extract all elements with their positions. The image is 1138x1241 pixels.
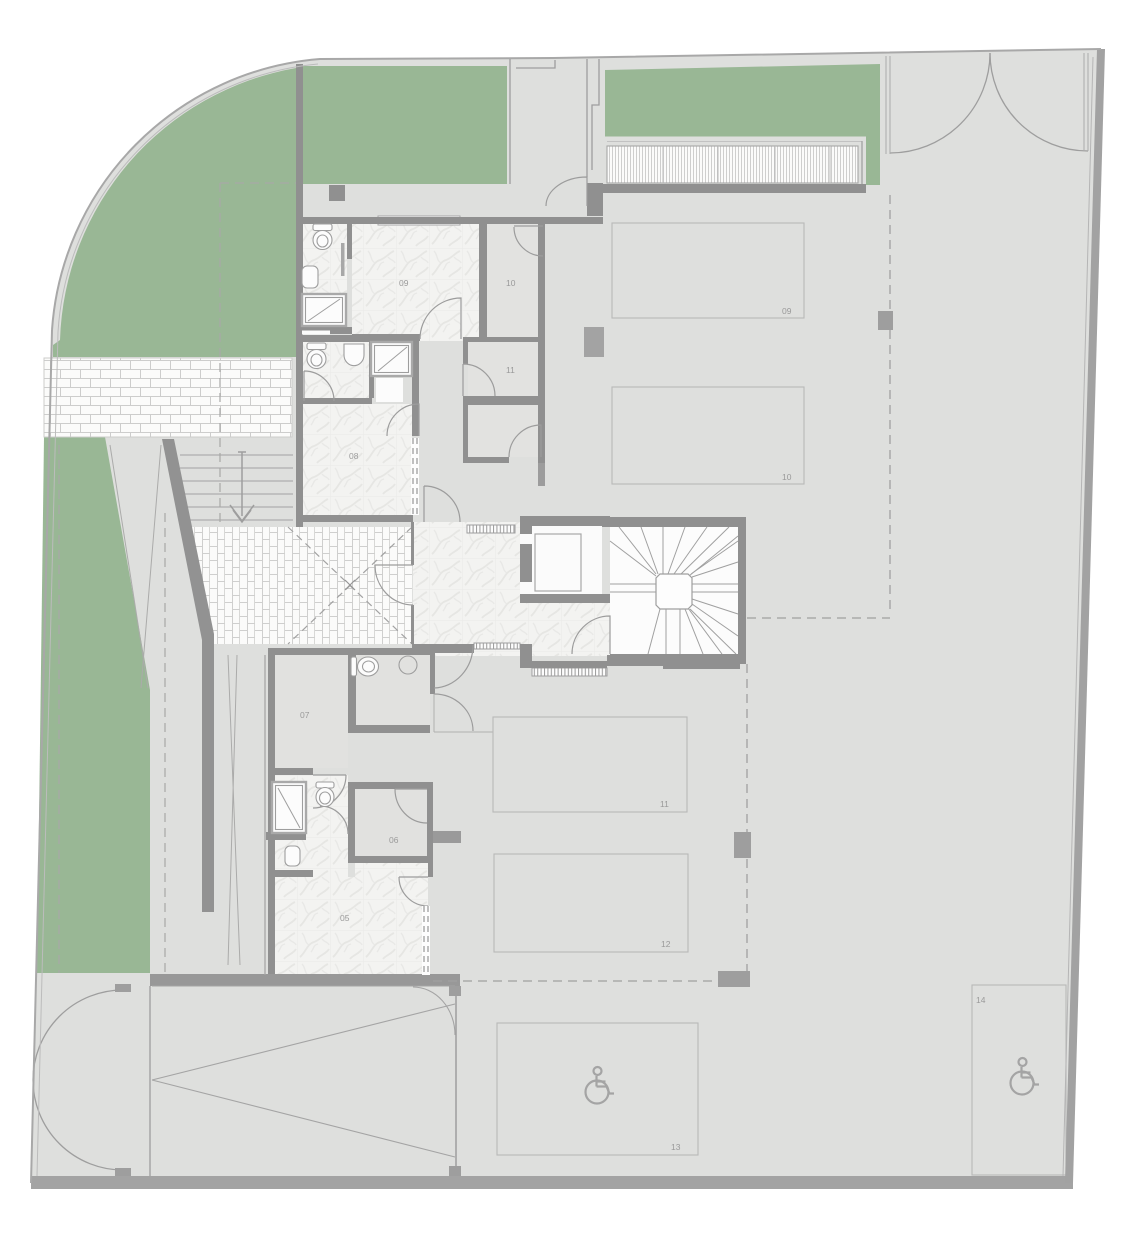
- svg-text:06: 06: [389, 835, 399, 845]
- svg-text:07: 07: [300, 710, 310, 720]
- svg-text:13: 13: [671, 1142, 681, 1152]
- svg-text:12: 12: [661, 939, 671, 949]
- svg-text:10: 10: [506, 278, 516, 288]
- svg-text:10: 10: [782, 472, 792, 482]
- svg-text:09: 09: [782, 306, 792, 316]
- svg-text:09: 09: [399, 278, 409, 288]
- svg-text:14: 14: [976, 995, 986, 1005]
- svg-text:08: 08: [349, 451, 359, 461]
- svg-text:11: 11: [506, 365, 515, 375]
- svg-text:11: 11: [660, 799, 669, 809]
- svg-text:05: 05: [340, 913, 350, 923]
